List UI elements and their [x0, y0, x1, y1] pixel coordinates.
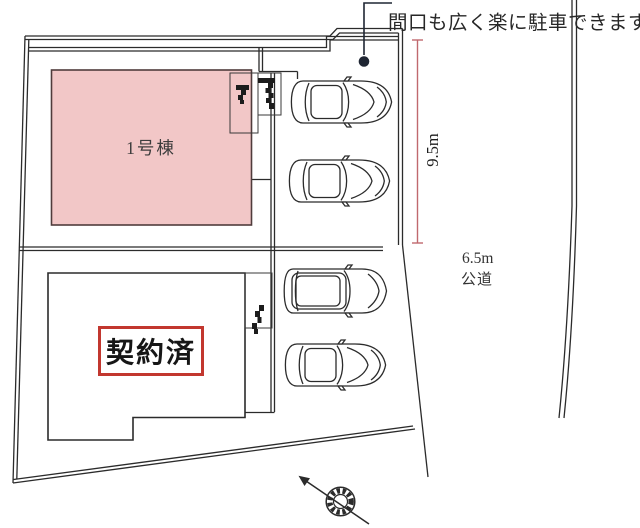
parcel-divider	[20, 247, 384, 251]
road-edge-line	[559, 0, 577, 418]
road-type-label: 公道	[461, 268, 493, 289]
callout-line	[359, 3, 392, 67]
setback-lines	[29, 37, 399, 52]
dimension-line	[412, 40, 423, 243]
car-top-view-icon	[284, 265, 386, 317]
building-unit1-label: 1号棟	[126, 135, 176, 160]
site-plan: 間口も広く楽に駐車できます 1号棟 契約済 9.5m 6.5m 公道	[0, 0, 640, 528]
car-top-view-icon	[289, 156, 389, 206]
building-unit1-label-box: 1号棟	[51, 70, 251, 225]
frontage-dimension-label: 9.5m	[423, 127, 443, 173]
sold-status-badge: 契約済	[98, 326, 204, 376]
car-top-view-icon	[285, 340, 385, 390]
road-width-label: 6.5m	[462, 250, 493, 268]
compass-north-icon	[299, 476, 370, 524]
callout-marker-dot	[359, 56, 370, 67]
tile-steps-lower	[245, 273, 272, 334]
sold-status-label: 契約済	[106, 331, 196, 371]
car-top-view-icon	[291, 77, 391, 127]
parking-annotation-text: 間口も広く楽に駐車できます	[388, 6, 640, 35]
